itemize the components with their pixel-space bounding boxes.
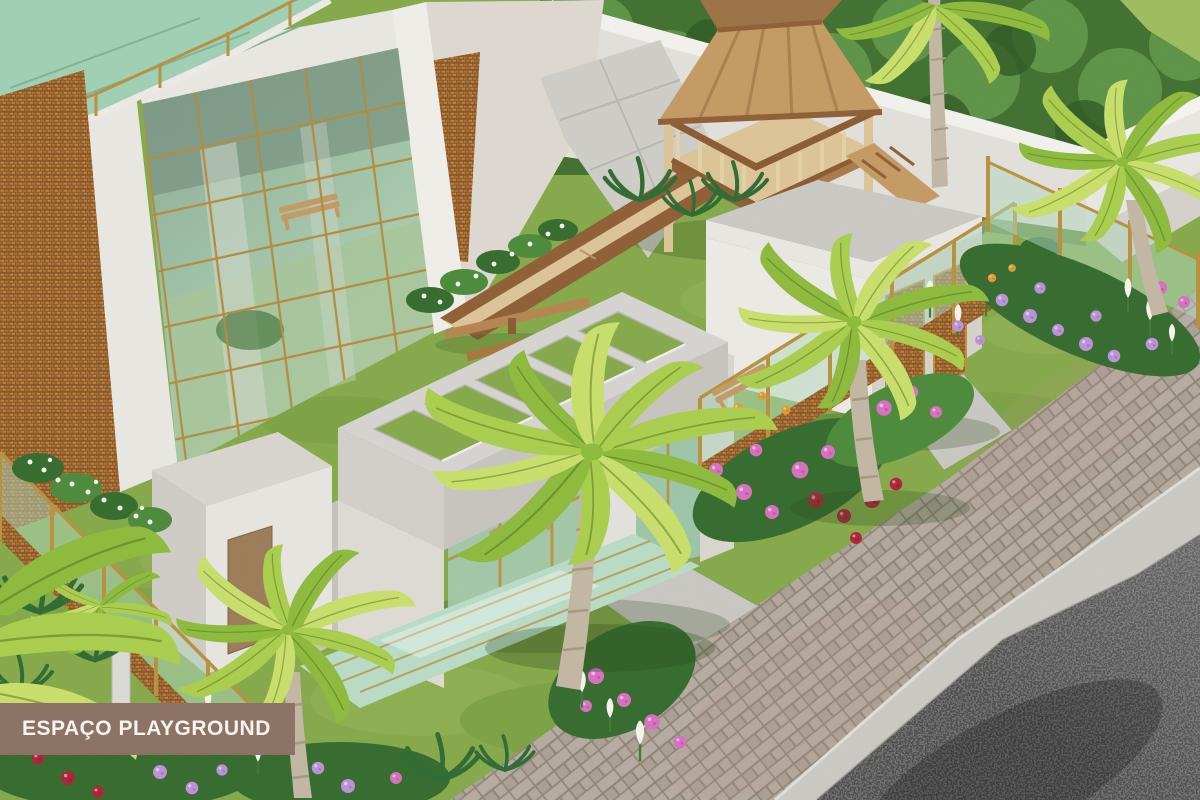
render-grain-overlay (0, 0, 1200, 800)
space-label-badge: ESPAÇO PLAYGROUND (0, 703, 295, 755)
render-canvas (0, 0, 1200, 800)
architectural-render-scene: ESPAÇO PLAYGROUND (0, 0, 1200, 800)
space-label-text: ESPAÇO PLAYGROUND (22, 717, 271, 741)
